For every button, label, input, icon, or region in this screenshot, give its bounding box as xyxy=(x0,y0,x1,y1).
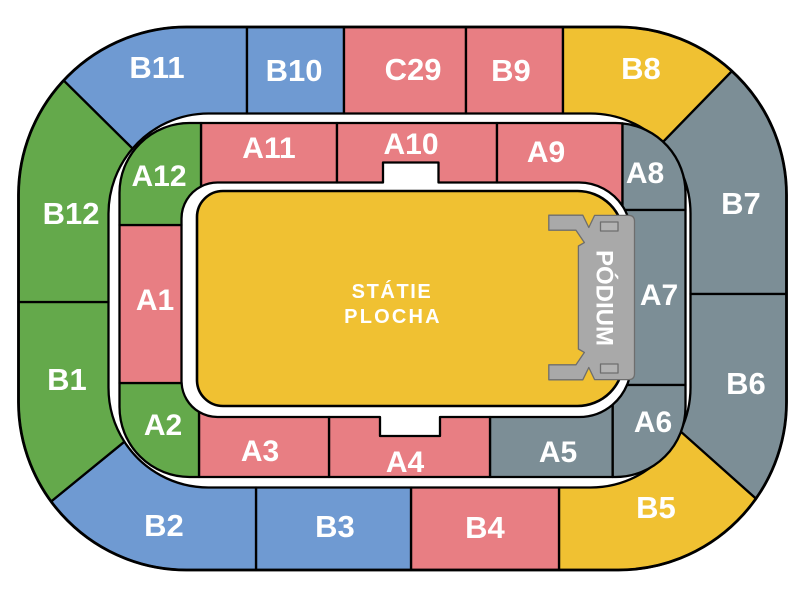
svg-text:B3: B3 xyxy=(315,509,355,544)
svg-text:PÓDIUM: PÓDIUM xyxy=(591,250,619,346)
svg-text:A8: A8 xyxy=(626,157,664,190)
svg-text:B12: B12 xyxy=(43,196,100,231)
svg-text:A6: A6 xyxy=(634,406,672,439)
svg-text:B2: B2 xyxy=(144,508,184,543)
svg-text:STÁTIE: STÁTIE xyxy=(352,280,433,303)
svg-text:B9: B9 xyxy=(491,53,531,88)
svg-text:B8: B8 xyxy=(621,51,661,86)
svg-text:A9: A9 xyxy=(527,136,565,169)
svg-text:B4: B4 xyxy=(465,510,505,545)
svg-text:A1: A1 xyxy=(136,284,174,317)
svg-text:B6: B6 xyxy=(726,366,766,401)
svg-text:B11: B11 xyxy=(129,50,184,85)
svg-text:A7: A7 xyxy=(640,279,678,312)
svg-text:B1: B1 xyxy=(47,362,87,397)
svg-text:A10: A10 xyxy=(383,128,438,161)
svg-text:A11: A11 xyxy=(242,132,295,165)
svg-text:A5: A5 xyxy=(539,436,577,469)
svg-text:A3: A3 xyxy=(241,435,279,468)
svg-text:C29: C29 xyxy=(385,52,442,87)
svg-text:A12: A12 xyxy=(131,160,186,193)
svg-text:B5: B5 xyxy=(636,490,676,525)
svg-text:A4: A4 xyxy=(386,446,425,479)
svg-text:B7: B7 xyxy=(721,186,761,221)
svg-text:A2: A2 xyxy=(144,409,182,442)
svg-text:PLOCHA: PLOCHA xyxy=(344,306,442,328)
svg-text:B10: B10 xyxy=(266,53,323,88)
